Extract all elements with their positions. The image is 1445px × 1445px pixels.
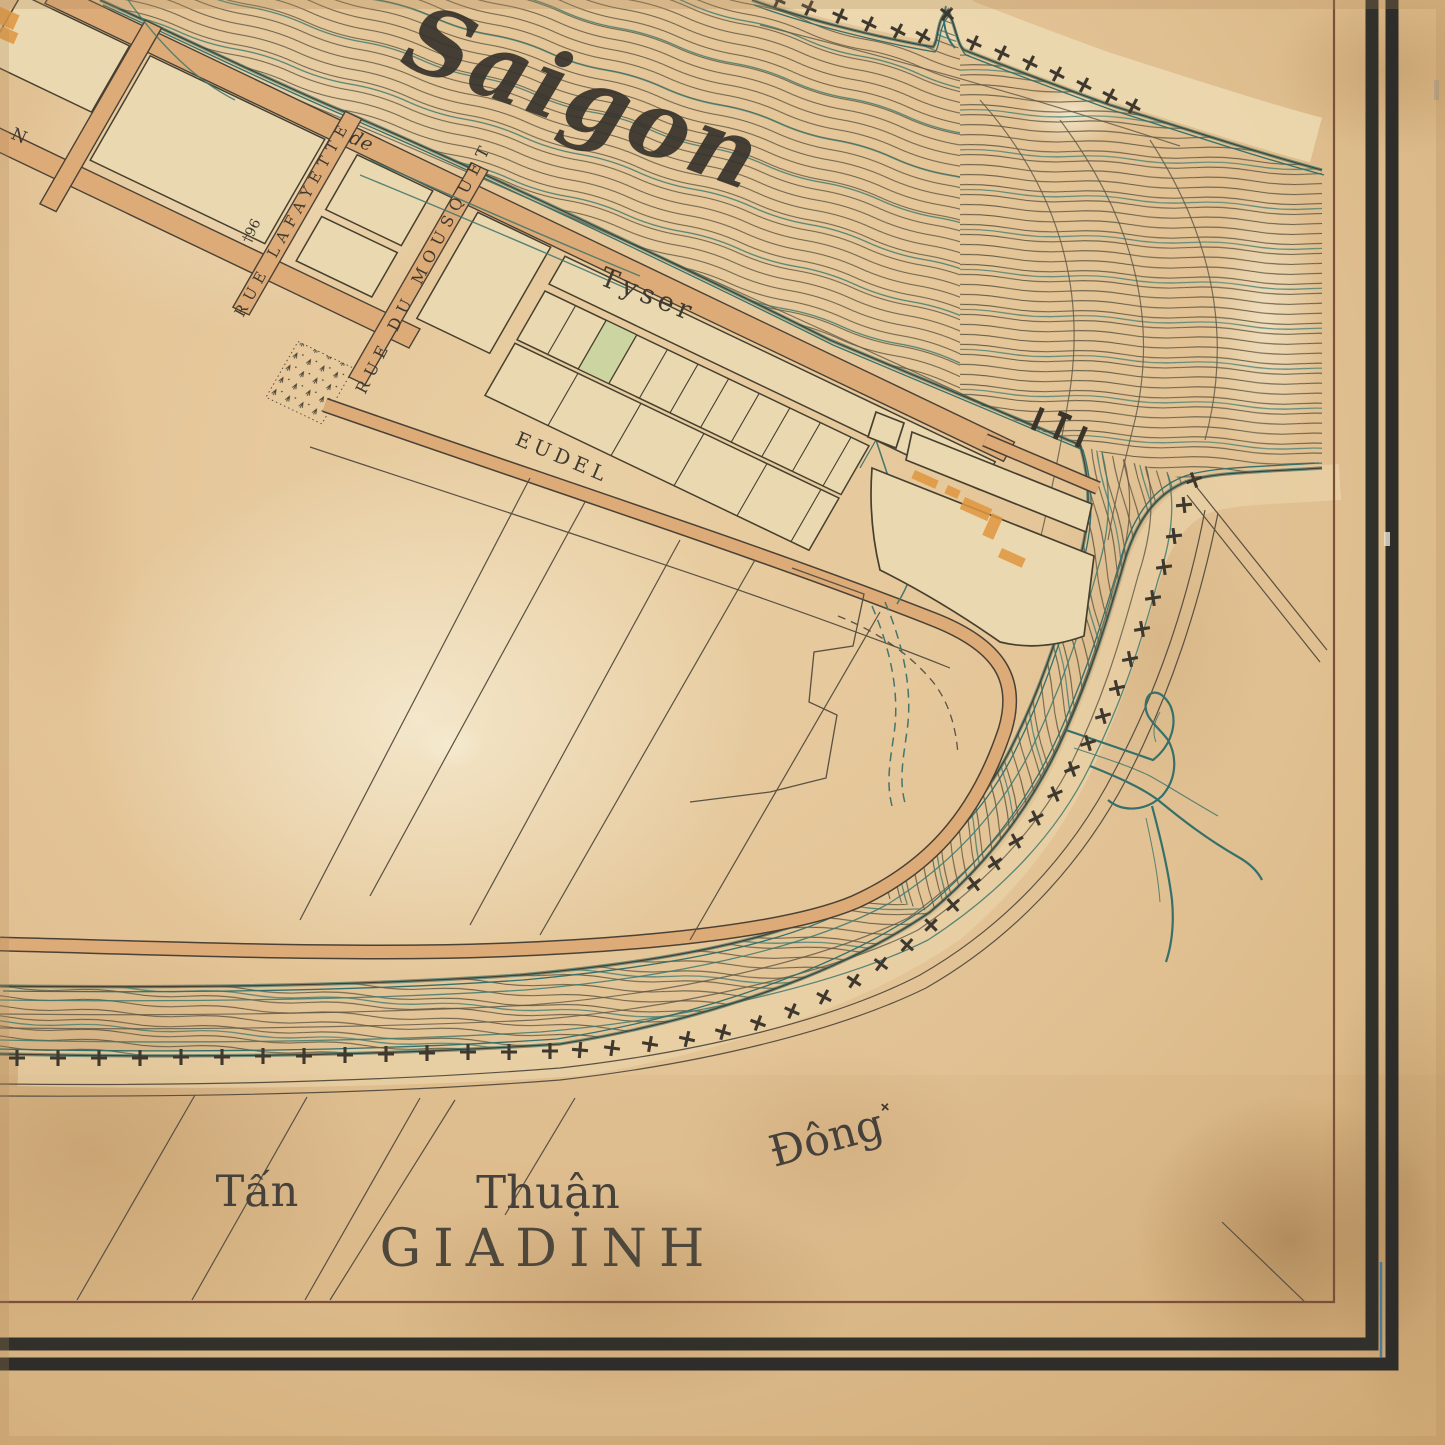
scanned-map-page: Saigon Tyser EUDEL RUE LAFAYETTE RUE DU … (0, 0, 1445, 1445)
label-village-tan: Tấn (216, 1167, 299, 1217)
label-province-giadinh: GIADINH (380, 1219, 717, 1279)
paint-speck (1384, 532, 1390, 546)
historic-map-saigon: Saigon Tyser EUDEL RUE LAFAYETTE RUE DU … (0, 0, 1445, 1445)
label-village-thuan: Thuận (476, 1166, 620, 1219)
